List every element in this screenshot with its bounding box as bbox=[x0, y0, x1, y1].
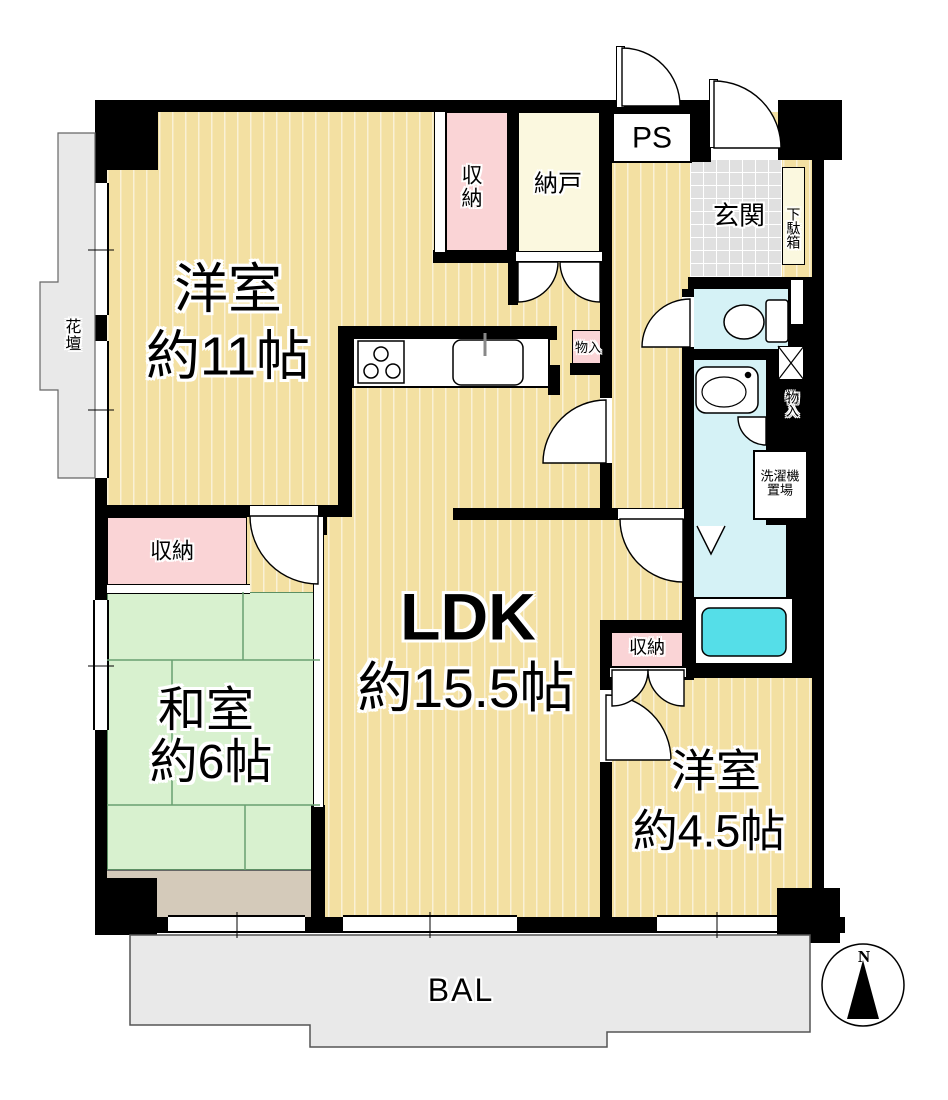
door-leaf-meterbox bbox=[616, 46, 625, 108]
window-west-1 bbox=[93, 183, 109, 315]
label-laundry-line2: 置場 bbox=[760, 483, 799, 497]
window-south-2 bbox=[343, 915, 517, 933]
toilet-room bbox=[694, 289, 790, 349]
label-closet-west: 収納 bbox=[150, 539, 194, 562]
label-ps: PS bbox=[632, 122, 672, 154]
label-japanese6-size: 約6帖 bbox=[150, 738, 273, 788]
label-western45-size: 約4.5帖 bbox=[633, 807, 786, 854]
label-western11-size: 約11帖 bbox=[146, 329, 310, 386]
door-leaf-nando bbox=[516, 251, 602, 262]
label-western11-name: 洋室 bbox=[174, 262, 282, 319]
doorway-45 bbox=[600, 690, 612, 762]
fusuma-divider bbox=[313, 517, 324, 807]
doorway-toilet bbox=[682, 297, 694, 347]
bathroom bbox=[694, 523, 786, 663]
floor-plan: 洋室 約11帖 LDK 約15.5帖 和室 約6帖 洋室 約4.5帖 収納 納戸… bbox=[0, 0, 948, 1100]
wall-nando-left bbox=[508, 112, 518, 305]
label-western45-name: 洋室 bbox=[671, 747, 761, 794]
label-nando: 納戸 bbox=[534, 171, 582, 196]
window-south-3 bbox=[657, 915, 777, 933]
label-laundry: 洗濯機 置場 bbox=[760, 469, 799, 496]
label-laundry-line1: 洗濯機 bbox=[760, 469, 799, 483]
wall-45-top bbox=[600, 620, 692, 632]
label-japanese6-name: 和室 bbox=[158, 686, 254, 736]
door-leaf-closet45 bbox=[610, 667, 686, 678]
window-west-3 bbox=[93, 600, 109, 730]
wall-bath-bottom bbox=[682, 663, 824, 678]
duct-box bbox=[778, 346, 804, 380]
wall-west-a bbox=[107, 505, 250, 517]
wall-washitsu-divider-lower bbox=[311, 805, 325, 917]
label-genkan: 玄関 bbox=[713, 202, 765, 229]
wall-corner-br bbox=[777, 888, 840, 943]
doorway-corridor bbox=[600, 398, 612, 463]
compass-needle bbox=[847, 960, 879, 1019]
label-closet-45: 収納 bbox=[629, 639, 665, 658]
label-ldk-size: 約15.5帖 bbox=[357, 660, 574, 718]
door-leaf-washitsu bbox=[250, 505, 318, 517]
toilet-window bbox=[790, 279, 804, 325]
sliding-door-closet-top bbox=[434, 112, 446, 252]
wall-bath-right bbox=[786, 523, 812, 663]
sliding-door-closet-west bbox=[107, 584, 250, 594]
wall-under-monoire bbox=[570, 363, 608, 375]
label-kadan: 花壇 bbox=[62, 318, 79, 352]
wall-45-left-lower bbox=[600, 762, 612, 918]
window-west-2 bbox=[93, 341, 109, 478]
label-getabako: 下駄箱 bbox=[786, 207, 801, 249]
door-arc-meterbox bbox=[622, 48, 680, 106]
wall-45-left-upper bbox=[600, 632, 612, 690]
label-compass-north: N bbox=[858, 948, 870, 966]
doorway-entry bbox=[711, 146, 778, 160]
flower-bed-shape bbox=[40, 133, 95, 478]
label-closet-top: 収納 bbox=[459, 164, 481, 210]
wall-ldk-north bbox=[453, 508, 622, 520]
label-balcony: BAL bbox=[428, 974, 494, 1008]
wall-right bbox=[812, 155, 824, 933]
label-monoire-kitchen: 物入 bbox=[575, 341, 601, 355]
kitchen-counter bbox=[352, 337, 550, 388]
label-monoire-east: 物入 bbox=[784, 391, 798, 417]
window-south-1 bbox=[168, 915, 305, 933]
label-ldk-name: LDK bbox=[400, 582, 536, 651]
wall-corridor-left-lower bbox=[600, 463, 612, 512]
wall-ldk-west bbox=[338, 338, 352, 512]
wall-corner-tr bbox=[778, 100, 842, 160]
door-leaf-washroom bbox=[618, 508, 684, 520]
door-leaf-entry bbox=[709, 79, 718, 148]
